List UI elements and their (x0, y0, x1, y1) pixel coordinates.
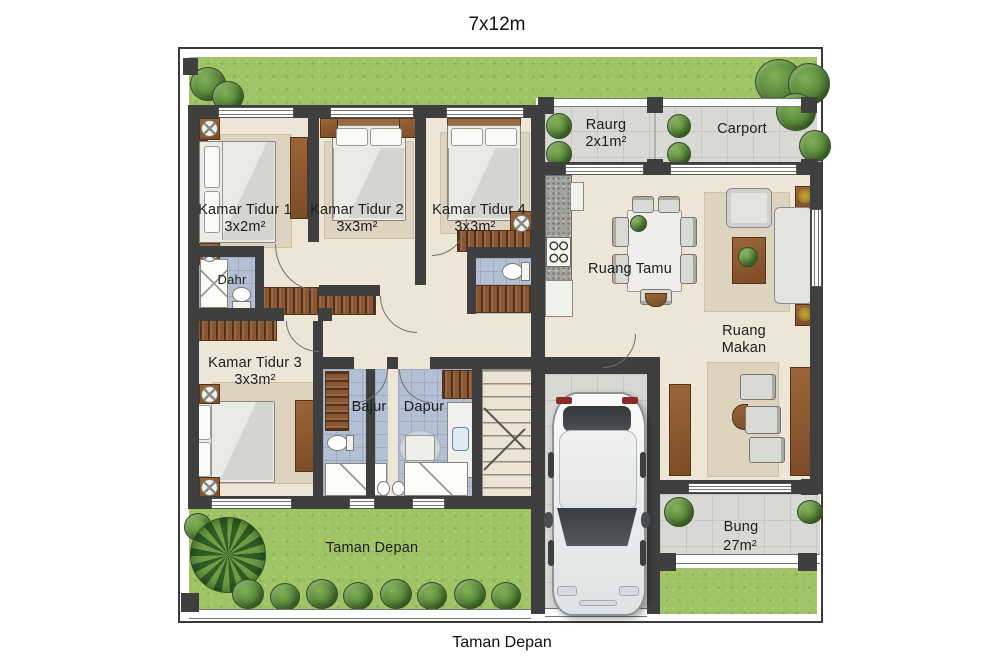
toilet-icon (377, 481, 390, 496)
car-mirror (544, 512, 553, 528)
wall-left (188, 105, 199, 509)
bush (380, 579, 412, 609)
sink-icon (452, 427, 469, 451)
toilet-icon (327, 435, 348, 451)
bush (797, 500, 823, 524)
bedroom3-blanket (211, 402, 273, 480)
car-roof (559, 430, 637, 512)
dining-chair (612, 217, 629, 247)
bush (546, 113, 572, 139)
bedroom2-label: Kamar Tidur 2 (310, 202, 404, 218)
stove-icon (546, 237, 571, 267)
bush (306, 579, 338, 609)
dining-label-line2: Makan (722, 340, 767, 356)
terrace-size: 27m² (723, 538, 757, 554)
floor-plan: Kamar Tidur 1 3x2m² Kamar Tidur 2 3x3m² … (178, 47, 823, 623)
post-carport-b (801, 159, 817, 175)
garden-label: Taman Depan (326, 540, 418, 556)
bush (454, 579, 486, 609)
window-dining (688, 483, 792, 493)
post-terrace-b (657, 553, 676, 571)
window-bedroom2 (330, 107, 414, 118)
plant-pot-icon (201, 479, 218, 496)
terrace-label: Bung (724, 519, 759, 535)
window-bedroom4 (446, 107, 524, 118)
wall-hall-a (319, 285, 380, 296)
dining-chair (632, 196, 654, 213)
bedroom1-size: 3x2m² (224, 219, 265, 235)
car-taillight (622, 397, 638, 404)
post-top-left (183, 58, 198, 75)
car-rear-window (563, 406, 631, 432)
bedroom3-desk (295, 400, 314, 472)
car-headlight (557, 586, 577, 596)
wall-bath4-left (467, 258, 476, 314)
table-plant-icon (630, 215, 647, 232)
bedroom2-pillow-b (370, 128, 402, 146)
bedroom4-pillow-a (451, 128, 483, 146)
kerb-terrace (660, 554, 820, 564)
coffee-table-plant-icon (738, 247, 758, 267)
kitchen-cabinet (545, 280, 573, 317)
plan-dimensions-title: 7x12m (468, 14, 525, 36)
carport-label: Carport (717, 121, 767, 137)
window-bajur (349, 498, 375, 509)
post-kerb-a (538, 97, 554, 114)
living-label: Ruang Tamu (588, 261, 672, 277)
wall-bath-small-top (188, 246, 264, 257)
fridge-icon (570, 182, 584, 211)
bedroom4-pillow-b (485, 128, 517, 146)
bath4-cabinet (472, 285, 532, 313)
bedroom3-size: 3x3m² (234, 372, 275, 388)
kerb-garden (189, 609, 531, 619)
wall-bath-small-right (255, 246, 264, 310)
plant-pot-icon (201, 120, 218, 137)
post-kerb-b (647, 97, 663, 113)
car-windshield (557, 508, 637, 546)
toilet-tank (521, 262, 530, 281)
dining-chair (658, 196, 680, 213)
wall-wet-top-a (323, 357, 354, 369)
post-bottom-left (181, 593, 199, 612)
dining-chair (680, 254, 697, 284)
bedroom2-pillow-a (336, 128, 368, 146)
window-right-wall (811, 209, 822, 287)
dapur-table (405, 435, 435, 461)
wall-bedroom3-top-b (318, 308, 332, 321)
lounge-chair (740, 374, 776, 400)
bath-small-label: Dahr (218, 273, 247, 288)
wall-garage-header (531, 357, 660, 374)
post-carport-a (647, 159, 663, 175)
lounge-chair (745, 406, 781, 434)
toilet-tank (346, 435, 354, 451)
bush (417, 582, 447, 610)
window-living-a (565, 164, 644, 175)
kerb-top (545, 98, 817, 107)
floor-plan-page: 7x12m (0, 0, 1000, 666)
bedroom4-size: 3x3m² (454, 219, 495, 235)
wall-garage-right (647, 357, 660, 614)
lounge-chair (749, 437, 785, 463)
dining-label-line1: Ruang (722, 323, 766, 339)
car-wheel (548, 452, 554, 478)
bedroom1-wardrobe (290, 137, 308, 219)
window-bedroom1 (218, 107, 294, 118)
bush (664, 497, 694, 527)
car (552, 392, 642, 612)
bedroom2-size: 3x3m² (336, 219, 377, 235)
wall-bath4-top (467, 247, 532, 258)
car-headlight (619, 586, 639, 596)
bottom-caption: Taman Depan (452, 634, 552, 652)
bush (232, 579, 264, 609)
bedroom1-pillow-a (204, 146, 220, 188)
wall-bedroom1-2 (308, 118, 319, 242)
car-grille (579, 600, 617, 606)
lawn-bottom-right (660, 568, 817, 614)
bush (343, 582, 373, 610)
bedroom3-label: Kamar Tidur 3 (208, 355, 302, 371)
window-bedroom3 (211, 498, 292, 509)
bajur-cabinet (325, 371, 349, 431)
bajur-label: Bajur (352, 399, 387, 415)
bush (491, 582, 521, 610)
car-taillight (556, 397, 572, 404)
armchair (726, 188, 772, 228)
dapur-shower (404, 462, 468, 496)
dapur-label: Dapur (404, 399, 445, 415)
wall-wet-top-b (387, 357, 398, 369)
post-kerb-c (801, 97, 817, 113)
car-mirror (641, 512, 650, 528)
sideboard-left (669, 384, 691, 476)
window-dapur (412, 498, 445, 509)
post-terrace-a (801, 479, 818, 495)
wall-bedroom3-top-a (188, 308, 284, 321)
bush (667, 114, 691, 138)
car-wheel (640, 452, 646, 478)
toilet-icon (232, 287, 251, 302)
porch-carport-divider (654, 105, 656, 162)
hall-wardrobe-b (191, 318, 277, 341)
toilet-icon (502, 263, 523, 280)
bush (270, 583, 300, 611)
car-wheel (548, 540, 554, 566)
dining-chair (680, 217, 697, 247)
bedroom1-label: Kamar Tidur 1 (198, 202, 292, 218)
window-living-b (670, 164, 797, 175)
toilet-icon (392, 481, 405, 496)
bedroom4-label: Kamar Tidur 4 (432, 202, 526, 218)
plant-pot-icon (201, 386, 218, 403)
porch-label: Raurg (586, 117, 627, 133)
sofa (774, 207, 813, 304)
car-wheel (640, 540, 646, 566)
wall-dapur-stairs (472, 369, 482, 496)
dapur-shelf (442, 370, 474, 399)
porch-size: 2x1m² (585, 134, 626, 150)
tree (799, 130, 831, 162)
wall-wet-top-c (430, 357, 531, 369)
sideboard-right (790, 367, 812, 476)
post-terrace-c (798, 553, 817, 571)
wall-bedroom2-4 (415, 118, 426, 285)
